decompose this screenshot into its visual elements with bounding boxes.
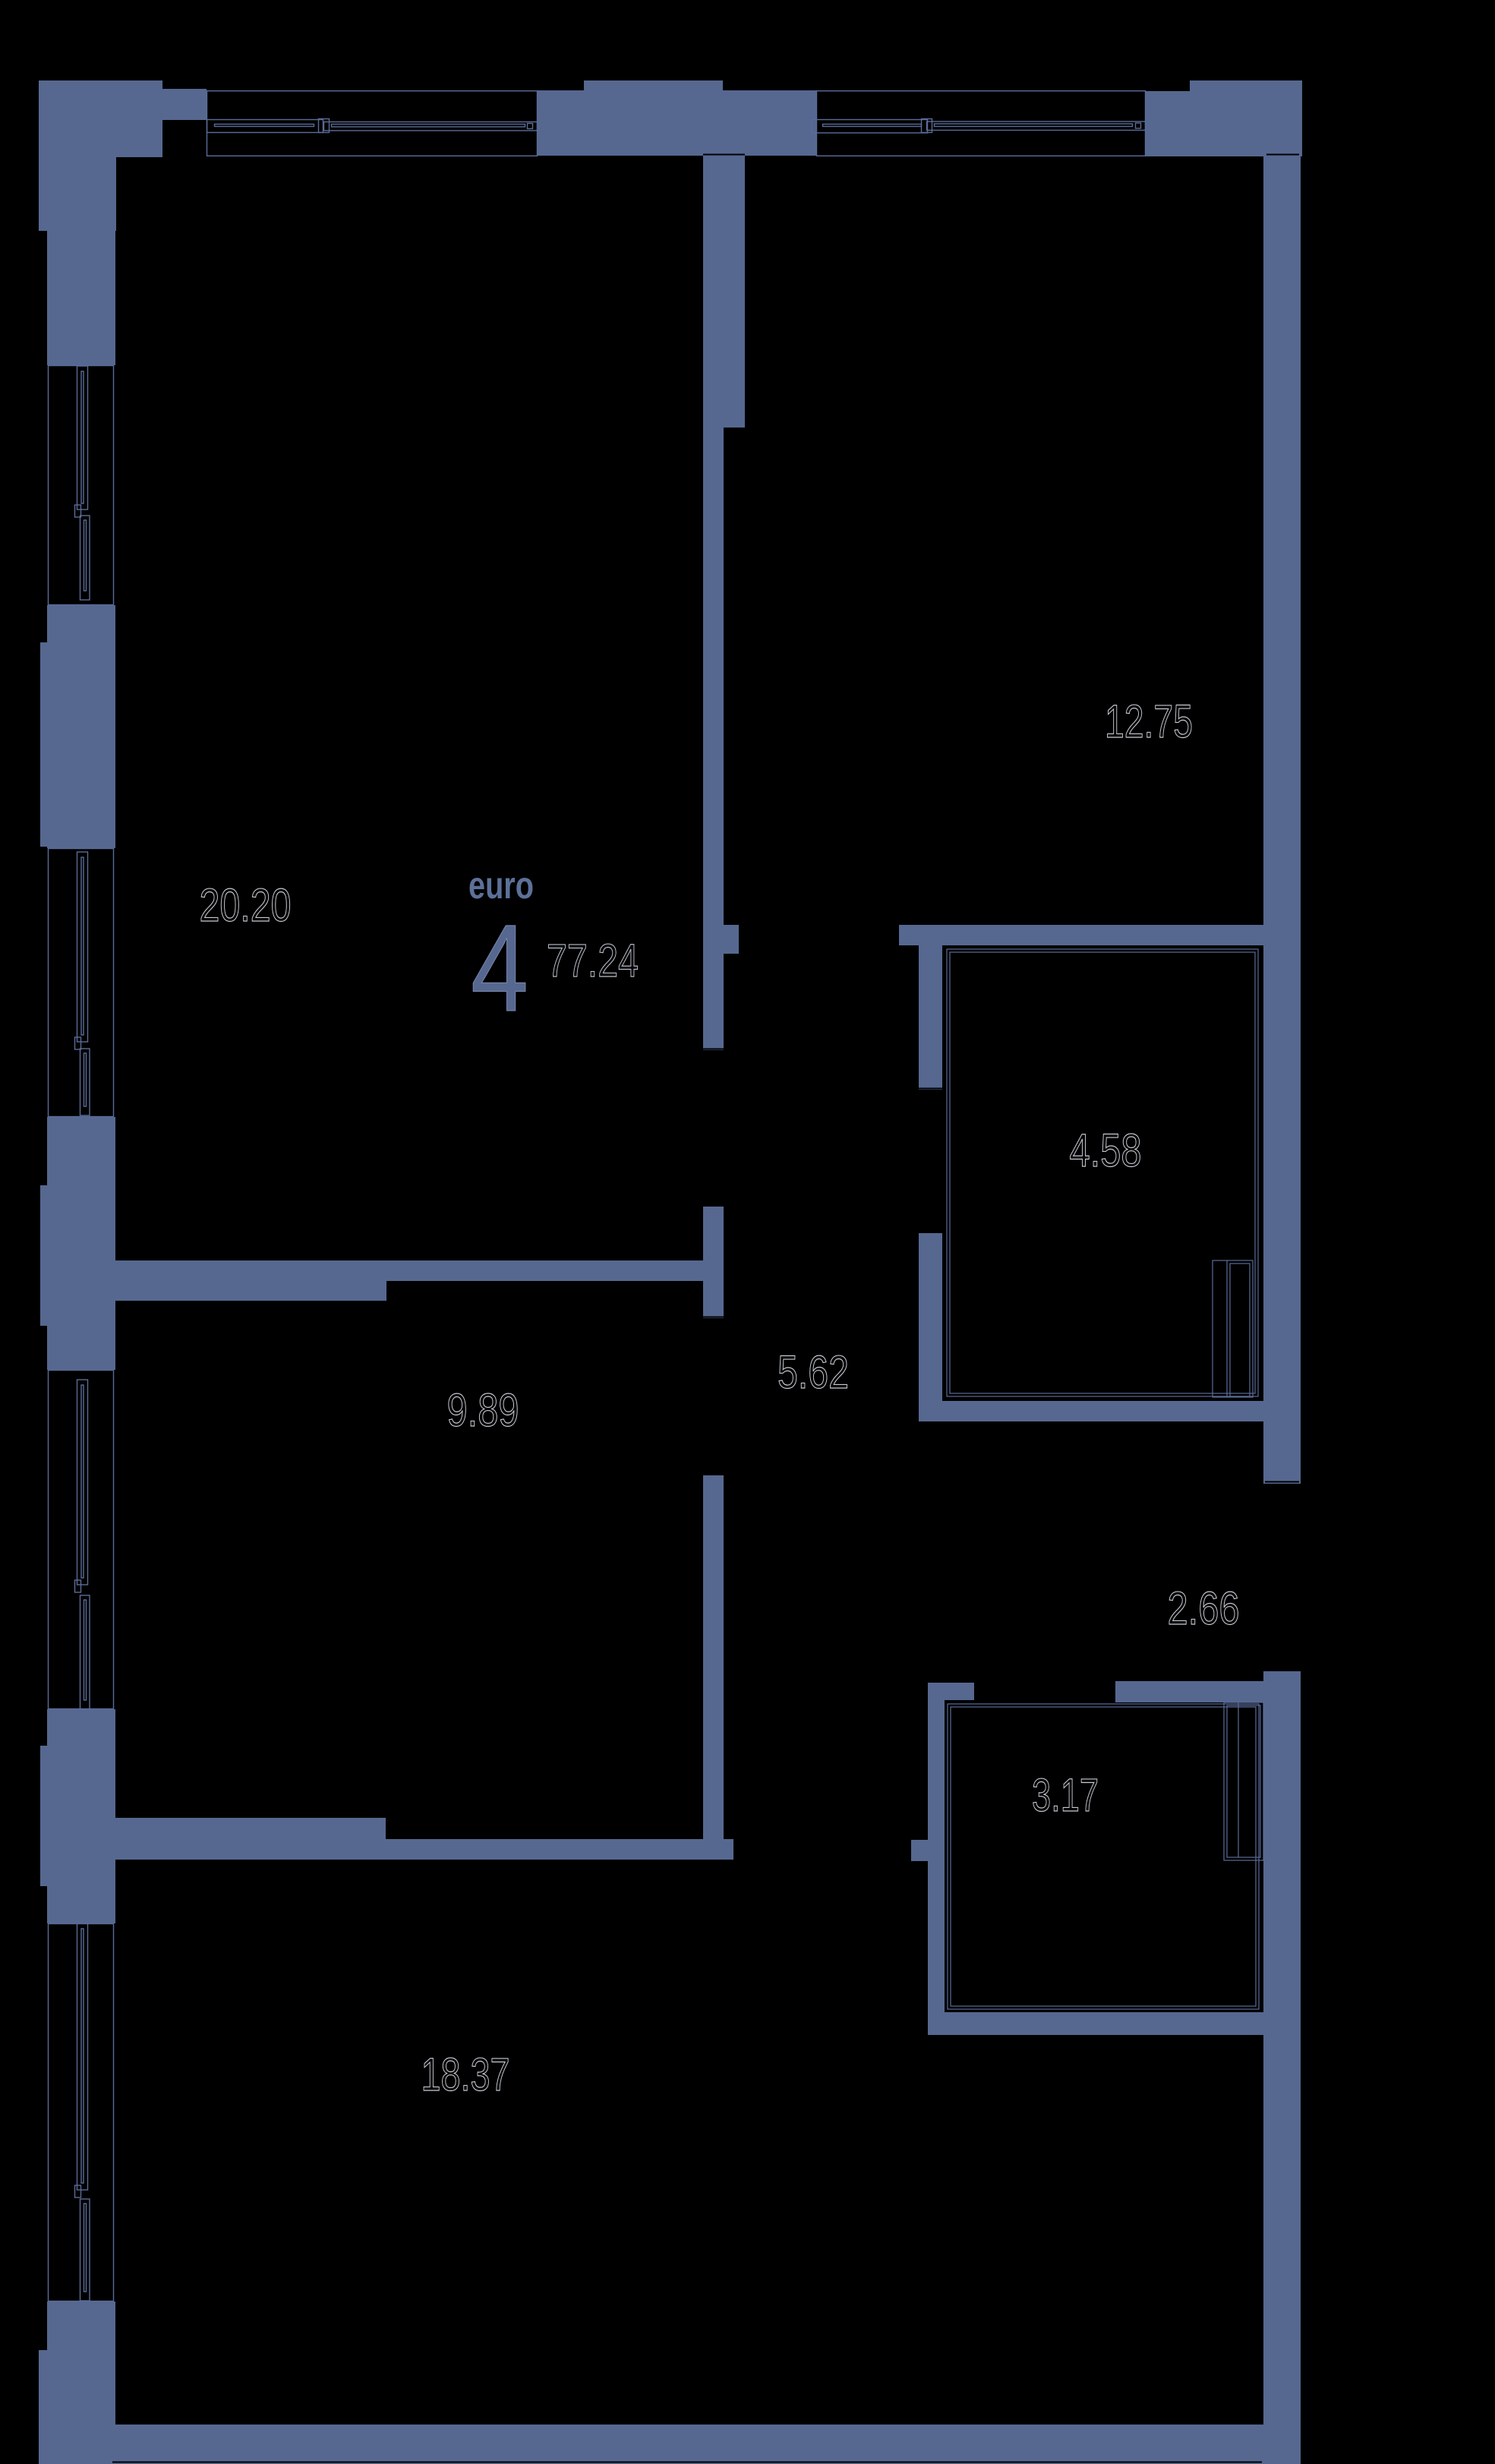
svg-text:77.24: 77.24 [547,935,639,986]
svg-text:9.89: 9.89 [447,1384,519,1436]
svg-text:18.37: 18.37 [421,2049,510,2100]
svg-text:4: 4 [471,898,528,1037]
svg-text:4.58: 4.58 [1070,1125,1142,1176]
svg-text:12.75: 12.75 [1105,696,1193,747]
svg-text:2.66: 2.66 [1168,1582,1240,1634]
svg-text:5.62: 5.62 [777,1346,849,1398]
svg-text:20.20: 20.20 [200,879,292,931]
svg-text:3.17: 3.17 [1032,1769,1099,1821]
